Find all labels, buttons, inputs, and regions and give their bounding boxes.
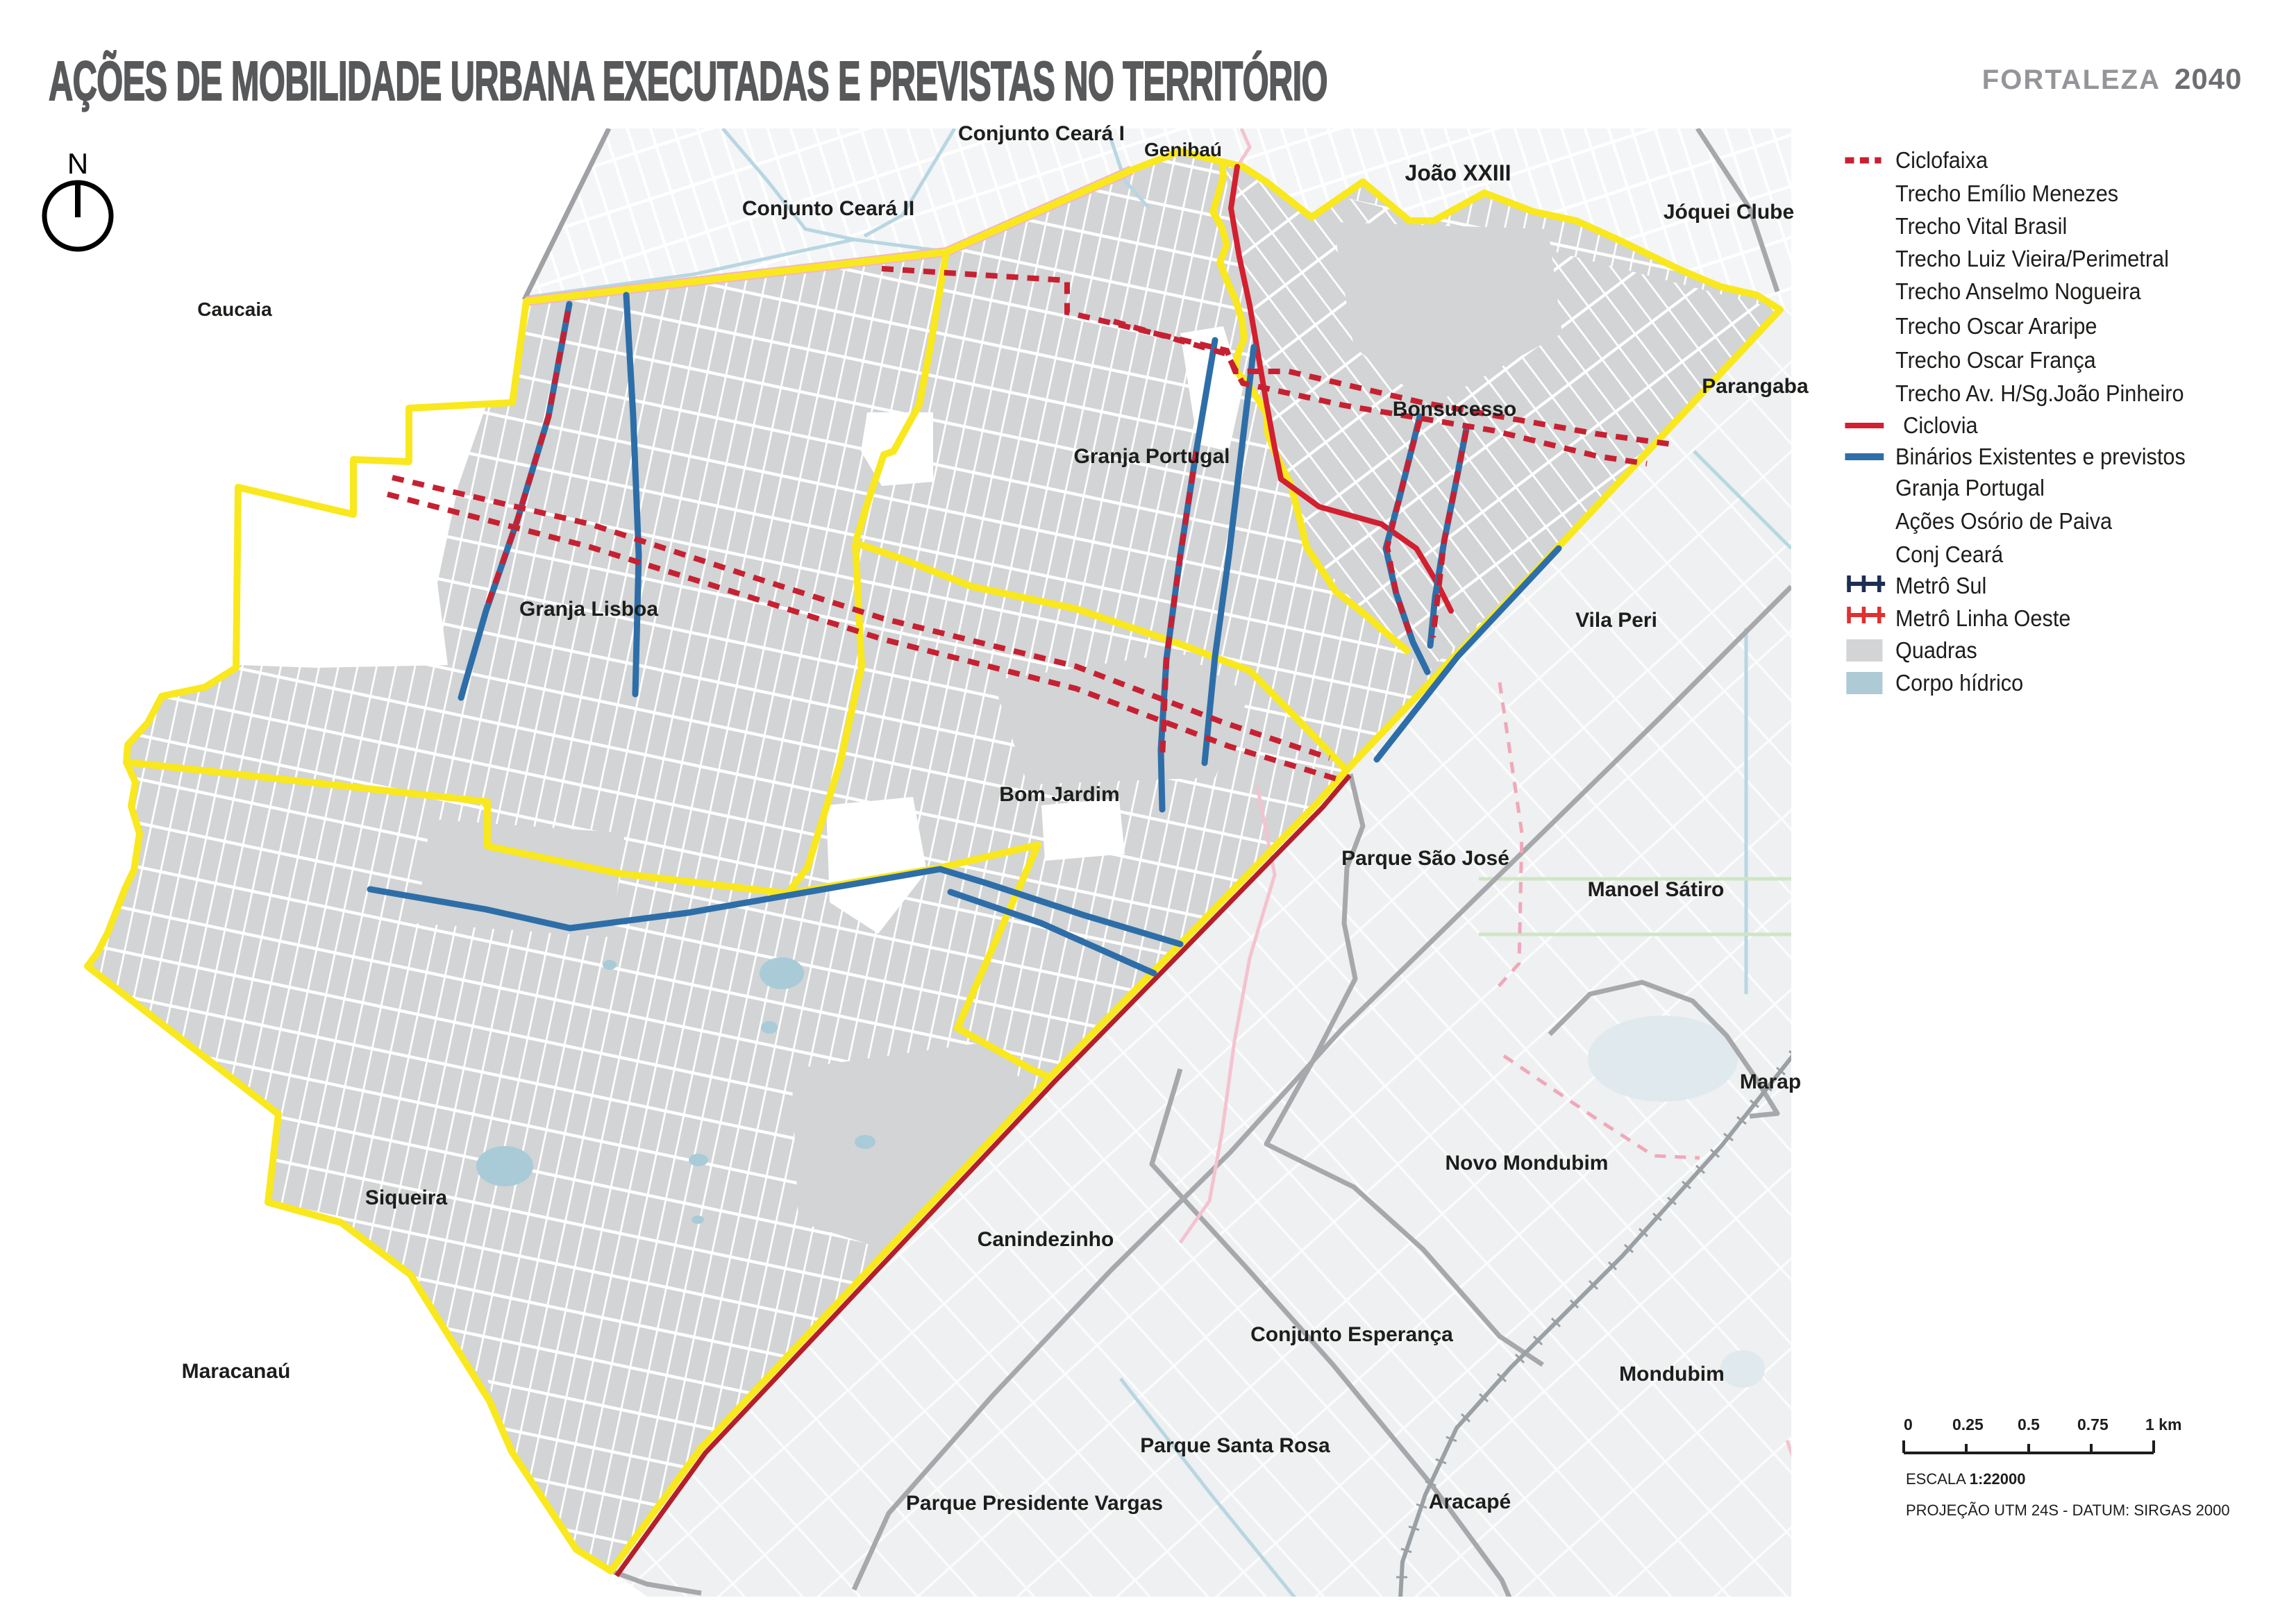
svg-text:Marap: Marap xyxy=(1740,1070,1801,1093)
svg-text:Bom Jardim: Bom Jardim xyxy=(999,783,1119,806)
svg-text:Parque Presidente Vargas: Parque Presidente Vargas xyxy=(906,1492,1163,1515)
svg-text:Vila Peri: Vila Peri xyxy=(1575,609,1657,632)
svg-text:Trecho Vital Brasil: Trecho Vital Brasil xyxy=(1895,213,2067,239)
svg-text:Bonsucesso: Bonsucesso xyxy=(1393,398,1516,421)
svg-text:Maracanaú: Maracanaú xyxy=(182,1360,291,1383)
svg-text:Caucaia: Caucaia xyxy=(197,298,272,320)
svg-text:Siqueira: Siqueira xyxy=(365,1186,448,1209)
svg-text:Granja Lisboa: Granja Lisboa xyxy=(519,598,658,621)
svg-text:Trecho Anselmo Nogueira: Trecho Anselmo Nogueira xyxy=(1895,278,2141,304)
svg-text:Novo Mondubim: Novo Mondubim xyxy=(1446,1152,1609,1175)
svg-text:2040: 2040 xyxy=(2175,62,2242,95)
svg-text:Trecho Luiz Vieira/Perimetral: Trecho Luiz Vieira/Perimetral xyxy=(1895,246,2169,271)
svg-text:0.5: 0.5 xyxy=(2018,1415,2040,1433)
svg-text:N: N xyxy=(67,147,88,180)
svg-text:Conj Ceará: Conj Ceará xyxy=(1895,541,2003,567)
svg-text:Trecho Oscar França: Trecho Oscar França xyxy=(1895,347,2096,373)
svg-text:Trecho Av. H/Sg.João Pinheiro: Trecho Av. H/Sg.João Pinheiro xyxy=(1895,380,2184,406)
svg-text:Parangaba: Parangaba xyxy=(1702,375,1809,398)
svg-text:Ações Osório de Paiva: Ações Osório de Paiva xyxy=(1895,508,2112,534)
svg-text:1 km: 1 km xyxy=(2145,1415,2181,1433)
svg-text:Quadras: Quadras xyxy=(1895,637,1977,663)
svg-text:Genibaú: Genibaú xyxy=(1144,139,1222,160)
svg-text:Parque São José: Parque São José xyxy=(1341,847,1509,870)
svg-text:Manoel Sátiro: Manoel Sátiro xyxy=(1588,878,1725,901)
svg-text:FORTALEZA: FORTALEZA xyxy=(1982,65,2161,95)
svg-text:Canindezinho: Canindezinho xyxy=(978,1228,1114,1251)
svg-text:0.25: 0.25 xyxy=(1952,1415,1984,1433)
svg-text:Metrô Linha Oeste: Metrô Linha Oeste xyxy=(1895,605,2070,631)
svg-text:AÇÕES DE MOBILIDADE URBANA EXE: AÇÕES DE MOBILIDADE URBANA EXECUTADAS E … xyxy=(49,50,1327,113)
svg-text:Ciclofaixa: Ciclofaixa xyxy=(1895,147,1988,173)
svg-text:Granja Portugal: Granja Portugal xyxy=(1895,475,2045,501)
svg-text:PROJEÇÃO UTM 24S - DATUM: SIRG: PROJEÇÃO UTM 24S - DATUM: SIRGAS 2000 xyxy=(1906,1502,2230,1519)
svg-text:0.75: 0.75 xyxy=(2077,1415,2109,1433)
svg-text:Aracapé: Aracapé xyxy=(1429,1490,1511,1513)
svg-text:Corpo hídrico: Corpo hídrico xyxy=(1895,670,2023,696)
svg-text:Conjunto Esperança: Conjunto Esperança xyxy=(1250,1323,1453,1346)
svg-text:Granja Portugal: Granja Portugal xyxy=(1073,445,1230,468)
svg-text:Conjunto Ceará I: Conjunto Ceará I xyxy=(958,122,1125,145)
svg-text:Mondubim: Mondubim xyxy=(1619,1363,1725,1386)
svg-text:Metrô Sul: Metrô Sul xyxy=(1895,573,1986,598)
svg-text:0: 0 xyxy=(1904,1415,1913,1433)
svg-text:Jóquei Clube: Jóquei Clube xyxy=(1664,201,1794,224)
svg-text:Trecho Oscar Araripe: Trecho Oscar Araripe xyxy=(1895,313,2097,339)
svg-text:Trecho Emílio Menezes: Trecho Emílio Menezes xyxy=(1895,180,2118,206)
svg-text:Conjunto Ceará II: Conjunto Ceará II xyxy=(742,197,914,220)
svg-text:Parque Santa Rosa: Parque Santa Rosa xyxy=(1140,1434,1330,1457)
svg-text:Binários Existentes e previsto: Binários Existentes e previstos xyxy=(1895,444,2186,469)
svg-text:Ciclovia: Ciclovia xyxy=(1903,412,1978,438)
svg-text:ESCALA 1:22000: ESCALA 1:22000 xyxy=(1906,1470,2025,1488)
svg-text:João XXIII: João XXIII xyxy=(1405,160,1511,185)
